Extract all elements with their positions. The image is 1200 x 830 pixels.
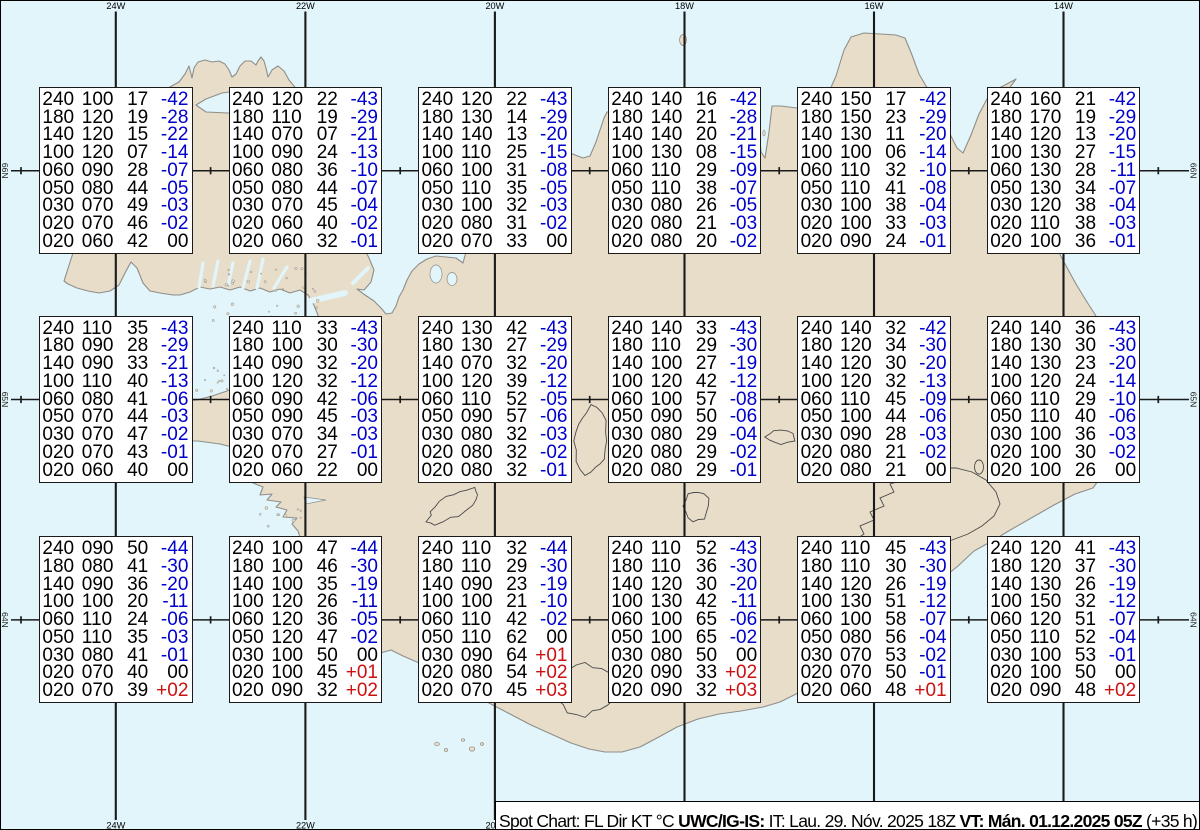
svg-text:65N: 65N: [1189, 392, 1199, 408]
svg-text:22W: 22W: [296, 820, 315, 830]
svg-text:64N: 64N: [1189, 612, 1199, 628]
svg-text:20W: 20W: [485, 1, 504, 11]
svg-text:24W: 24W: [106, 820, 125, 830]
svg-text:18W: 18W: [675, 1, 694, 11]
svg-text:65N: 65N: [0, 392, 10, 408]
svg-text:24W: 24W: [106, 1, 125, 11]
svg-text:66N: 66N: [0, 163, 10, 179]
svg-text:14W: 14W: [1054, 1, 1073, 11]
svg-text:16W: 16W: [865, 1, 884, 11]
svg-text:64N: 64N: [0, 612, 10, 628]
svg-text:66N: 66N: [1189, 163, 1199, 179]
svg-text:22W: 22W: [296, 1, 315, 11]
